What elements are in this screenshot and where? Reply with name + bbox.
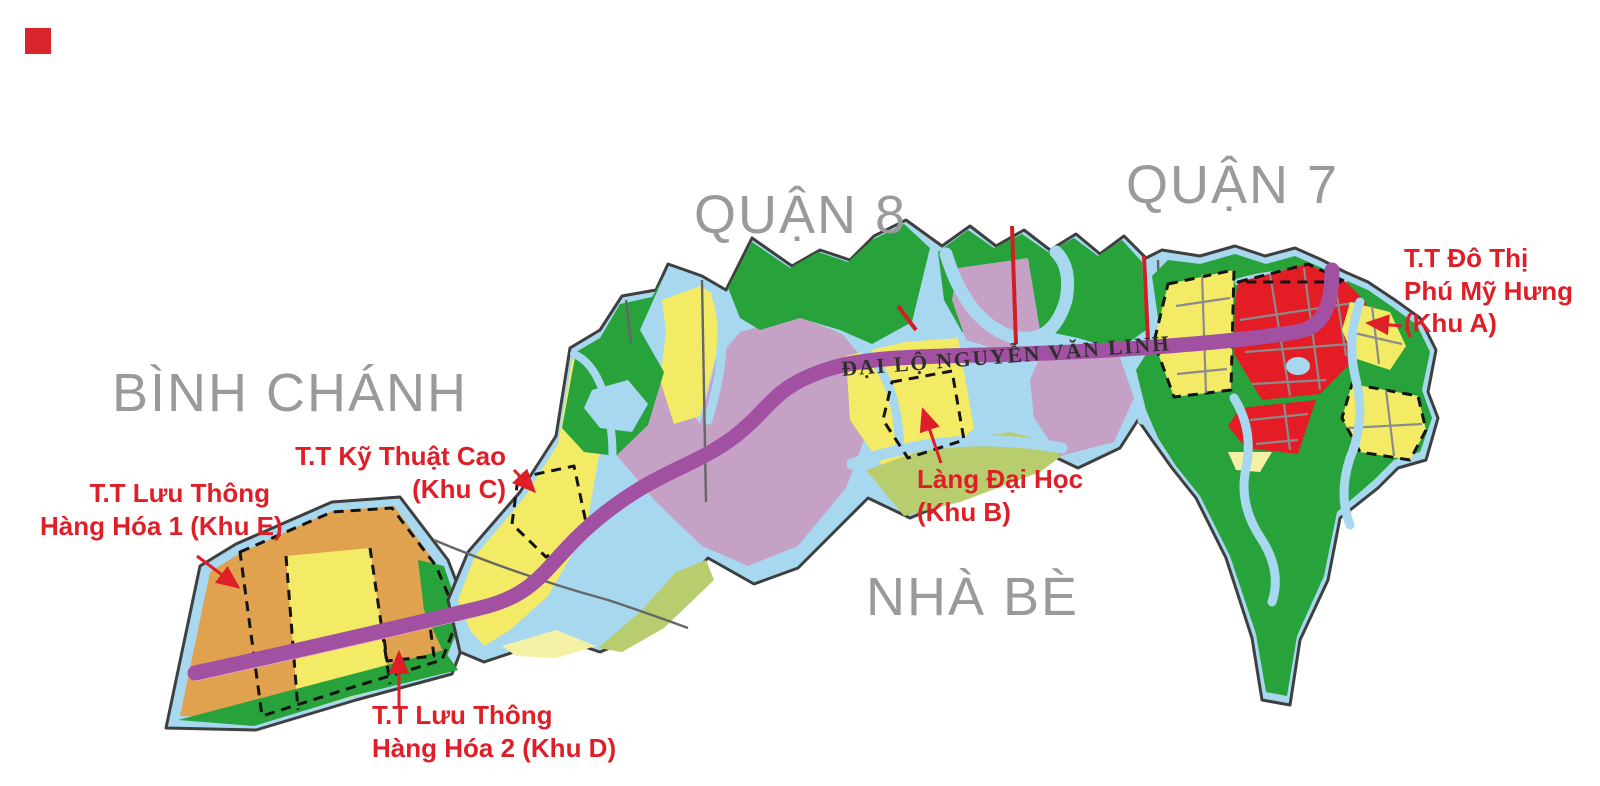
zone-label-line: T.T Kỹ Thuật Cao xyxy=(288,440,506,473)
zone-label-line: T.T Lưu Thông xyxy=(40,477,270,510)
zone-label-khu-e: T.T Lưu Thông Hàng Hóa 1 (Khu E) xyxy=(40,477,270,542)
zone-label-line: Phú Mỹ Hưng xyxy=(1404,275,1573,308)
zone-label-line: T.T Lưu Thông xyxy=(372,699,616,732)
zone-label-line: Hàng Hóa 1 (Khu E) xyxy=(40,510,270,543)
zone-label-line: (Khu C) xyxy=(288,473,506,506)
zone-label-khu-d: T.T Lưu Thông Hàng Hóa 2 (Khu D) xyxy=(372,699,616,764)
zone-label-khu-b: Làng Đại Học (Khu B) xyxy=(917,463,1083,528)
district-label-nha-be: NHÀ BÈ xyxy=(866,566,1079,628)
district-label-quan-7: QUẬN 7 xyxy=(1126,154,1339,216)
zone-label-khu-c: T.T Kỹ Thuật Cao (Khu C) xyxy=(288,440,506,505)
district-label-binh-chanh: BÌNH CHÁNH xyxy=(112,362,468,424)
zone-label-line: Hàng Hóa 2 (Khu D) xyxy=(372,732,616,765)
zone-label-line: T.T Đô Thị xyxy=(1404,242,1573,275)
zone-label-line: Làng Đại Học xyxy=(917,463,1083,496)
zone-label-khu-a: T.T Đô Thị Phú Mỹ Hưng (Khu A) xyxy=(1404,242,1573,340)
red-marker xyxy=(25,28,51,54)
zone-label-line: (Khu A) xyxy=(1404,307,1573,340)
district-label-quan-8: QUẬN 8 xyxy=(694,184,907,246)
planning-map: ĐẠI LỘ NGUYỄN VĂN LINH BÌNH CHÁNH QUẬN 8… xyxy=(0,0,1600,786)
zone-label-line: (Khu B) xyxy=(917,496,1083,529)
